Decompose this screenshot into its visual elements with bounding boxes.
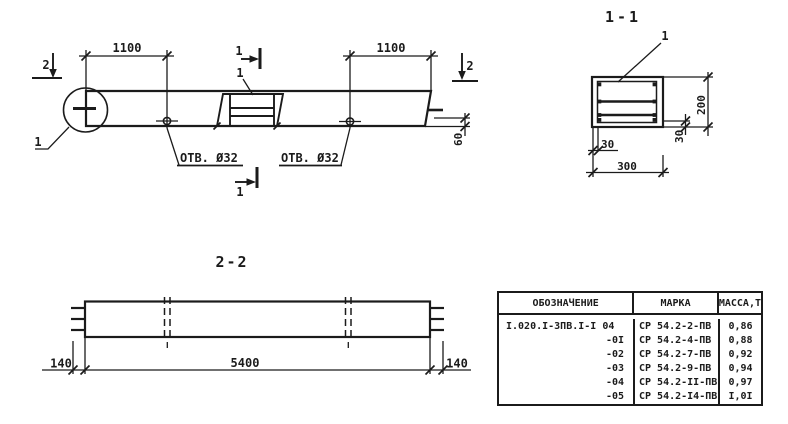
cell-mark: СР 54.2-7-ПВ: [633, 347, 720, 361]
hole-right: [339, 50, 361, 128]
spec-table: ОБОЗНАЧЕНИЕ МАРКА МАССА,Т I.020.I-3ПВ.I-…: [497, 291, 763, 406]
dim-label: 30: [673, 130, 686, 143]
section-mark-label: 1: [235, 44, 242, 58]
dim-label: 30: [601, 138, 614, 151]
section-mark-1-bottom: 1: [235, 167, 257, 199]
dim-1100-right: 1100: [343, 41, 438, 91]
hole-label-text: ОТВ. Ø32: [281, 151, 339, 165]
cross-section: [592, 77, 663, 127]
dim-label: 140: [446, 357, 468, 371]
dim-1100-left: 1100: [79, 41, 174, 91]
cell-designation: -04: [499, 376, 633, 390]
protruding-bars-left: [71, 308, 85, 330]
dim-chain-bottom: 140 5400 140: [42, 337, 471, 375]
dim-30-vertical: 30: [664, 114, 690, 143]
cell-mark: СР 54.2-2-ПВ: [633, 319, 720, 333]
hidden-hole-right: [346, 297, 352, 348]
cell-designation: -02: [499, 347, 633, 361]
dim-label: 60: [452, 133, 465, 146]
table-row: -05 СР 54.2-I4-ПВ I,0I: [499, 390, 761, 404]
section-2-2-view: 2-2: [42, 253, 471, 375]
cell-designation: -0I: [499, 333, 633, 347]
cell-mass: 0,86: [720, 319, 761, 333]
cell-mass: 0,92: [720, 347, 761, 361]
section-mark-label: 2: [466, 59, 473, 73]
table-row: -0I СР 54.2-4-ПВ 0,88: [499, 333, 761, 347]
drawing-sheet: 1 1100 1100: [0, 0, 788, 424]
header-mass: МАССА,Т: [719, 293, 761, 313]
header-designation: ОБОЗНАЧЕНИЕ: [499, 293, 632, 313]
header-mark: МАРКА: [632, 293, 719, 313]
table-row: -03 СР 54.2-9-ПВ 0,94: [499, 362, 761, 376]
beam-opening: [214, 94, 284, 130]
rebar-callout-label: 1: [661, 29, 668, 43]
dim-label: 5400: [231, 356, 260, 370]
spec-table-header: ОБОЗНАЧЕНИЕ МАРКА МАССА,Т: [499, 293, 761, 315]
cell-mark: СР 54.2-4-ПВ: [633, 333, 720, 347]
dim-60: 60: [425, 113, 470, 146]
rebar-callout: 1: [618, 29, 669, 82]
dim-200: 200: [664, 72, 713, 136]
detail-circle: 1: [34, 88, 107, 149]
opening-callout-label: 1: [236, 66, 243, 80]
section-title: 2-2: [215, 253, 248, 271]
cell-mark: СР 54.2-I4-ПВ: [633, 390, 720, 404]
dim-label: 200: [695, 95, 708, 115]
hole-label-right: ОТВ. Ø32: [279, 128, 350, 166]
elevation-view: 1 1100 1100: [32, 41, 478, 199]
dim-label: 1100: [377, 41, 406, 55]
hole-label-text: ОТВ. Ø32: [180, 151, 238, 165]
table-row: I.020.I-3ПВ.I-I 04 СР 54.2-2-ПВ 0,86: [499, 319, 761, 333]
hole-left: [156, 50, 178, 128]
table-row: -04 СР 54.2-II-ПВ 0,97: [499, 376, 761, 390]
protruding-bars-right: [430, 308, 444, 330]
section-mark-label: 2: [42, 58, 49, 72]
section-title: 1-1: [605, 8, 641, 26]
section-mark-2-left: 2: [32, 53, 62, 78]
cell-mark: СР 54.2-9-ПВ: [633, 362, 720, 376]
section-mark-2-right: 2: [452, 53, 478, 81]
cell-mark: СР 54.2-II-ПВ: [633, 376, 720, 390]
cell-mass: 0,88: [720, 333, 761, 347]
cell-designation: I.020.I-3ПВ.I-I 04: [499, 319, 633, 333]
dim-label: 140: [50, 357, 72, 371]
cell-designation: -05: [499, 390, 633, 404]
detail-callout-label: 1: [34, 135, 41, 149]
dim-label: 300: [617, 160, 637, 173]
cell-mass: 0,94: [720, 362, 761, 376]
dim-label: 1100: [113, 41, 142, 55]
hidden-hole-left: [165, 297, 171, 348]
hole-label-left: ОТВ. Ø32: [167, 128, 243, 166]
section-1-1-view: 1-1 1 200: [586, 8, 713, 177]
spec-table-body: I.020.I-3ПВ.I-I 04 СР 54.2-2-ПВ 0,86 -0I…: [499, 315, 761, 404]
cell-mass: 0,97: [720, 376, 761, 390]
section-mark-label: 1: [236, 185, 243, 199]
cell-designation: -03: [499, 362, 633, 376]
beam-section-outline: [85, 302, 430, 338]
table-row: -02 СР 54.2-7-ПВ 0,92: [499, 347, 761, 361]
cell-mass: I,0I: [720, 390, 761, 404]
